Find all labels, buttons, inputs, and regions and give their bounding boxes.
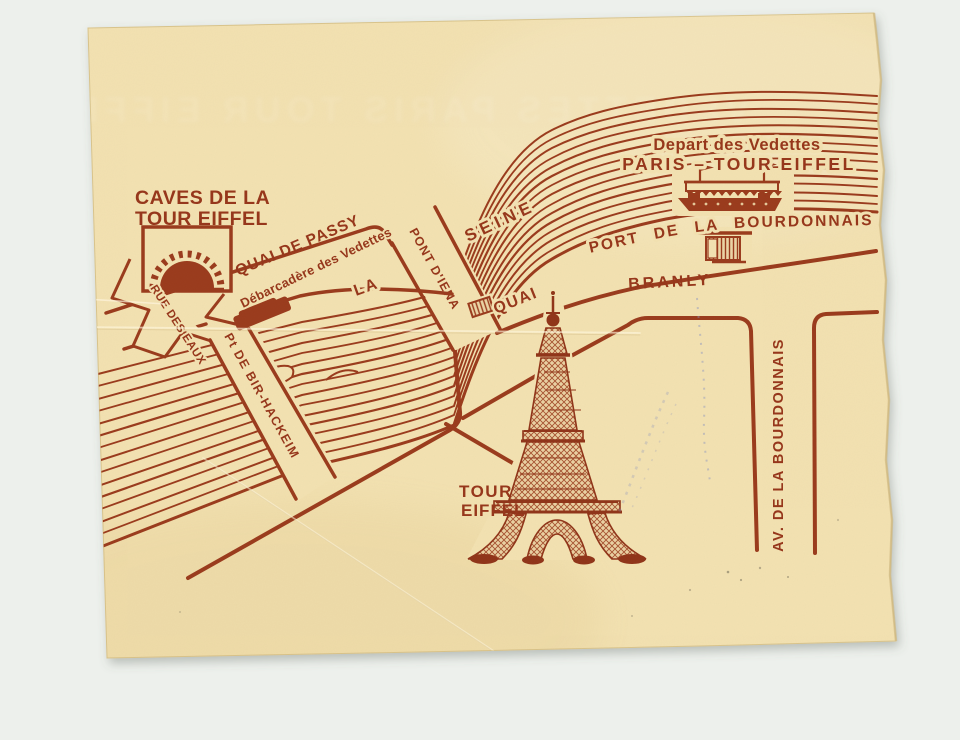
paper-grain (80, 8, 905, 663)
ticket-map-svg: VEDETTES PARIS TOUR EIFFEL Pt DE (0, 0, 960, 740)
